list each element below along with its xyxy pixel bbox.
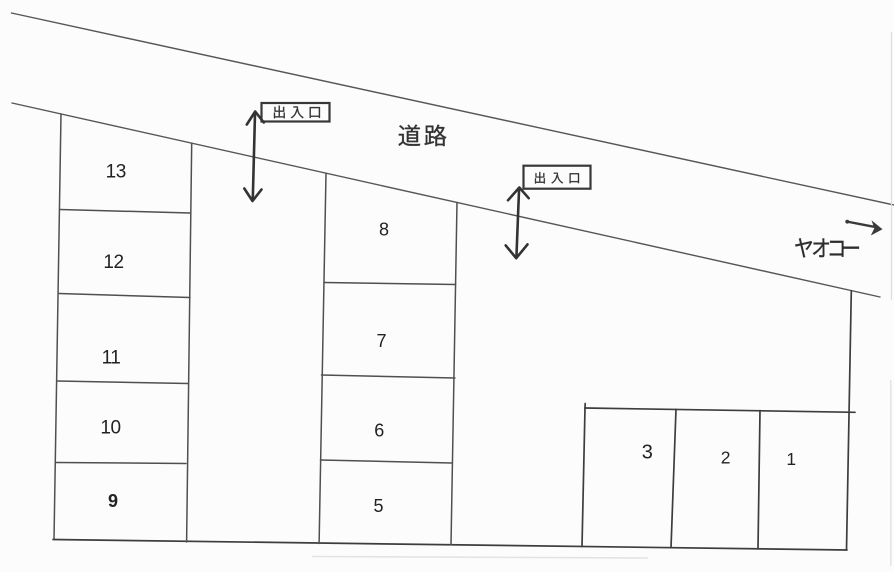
svg-text:5: 5: [374, 496, 384, 516]
svg-text:2: 2: [721, 448, 730, 468]
svg-text:7: 7: [376, 331, 386, 351]
svg-text:11: 11: [102, 347, 121, 368]
svg-text:8: 8: [379, 220, 389, 240]
svg-text:13: 13: [106, 162, 126, 183]
svg-text:3: 3: [642, 441, 653, 463]
svg-text:1: 1: [786, 449, 795, 469]
svg-text:6: 6: [374, 421, 384, 441]
svg-text:12: 12: [103, 252, 123, 273]
svg-text:10: 10: [100, 417, 120, 438]
svg-text:9: 9: [108, 491, 118, 511]
